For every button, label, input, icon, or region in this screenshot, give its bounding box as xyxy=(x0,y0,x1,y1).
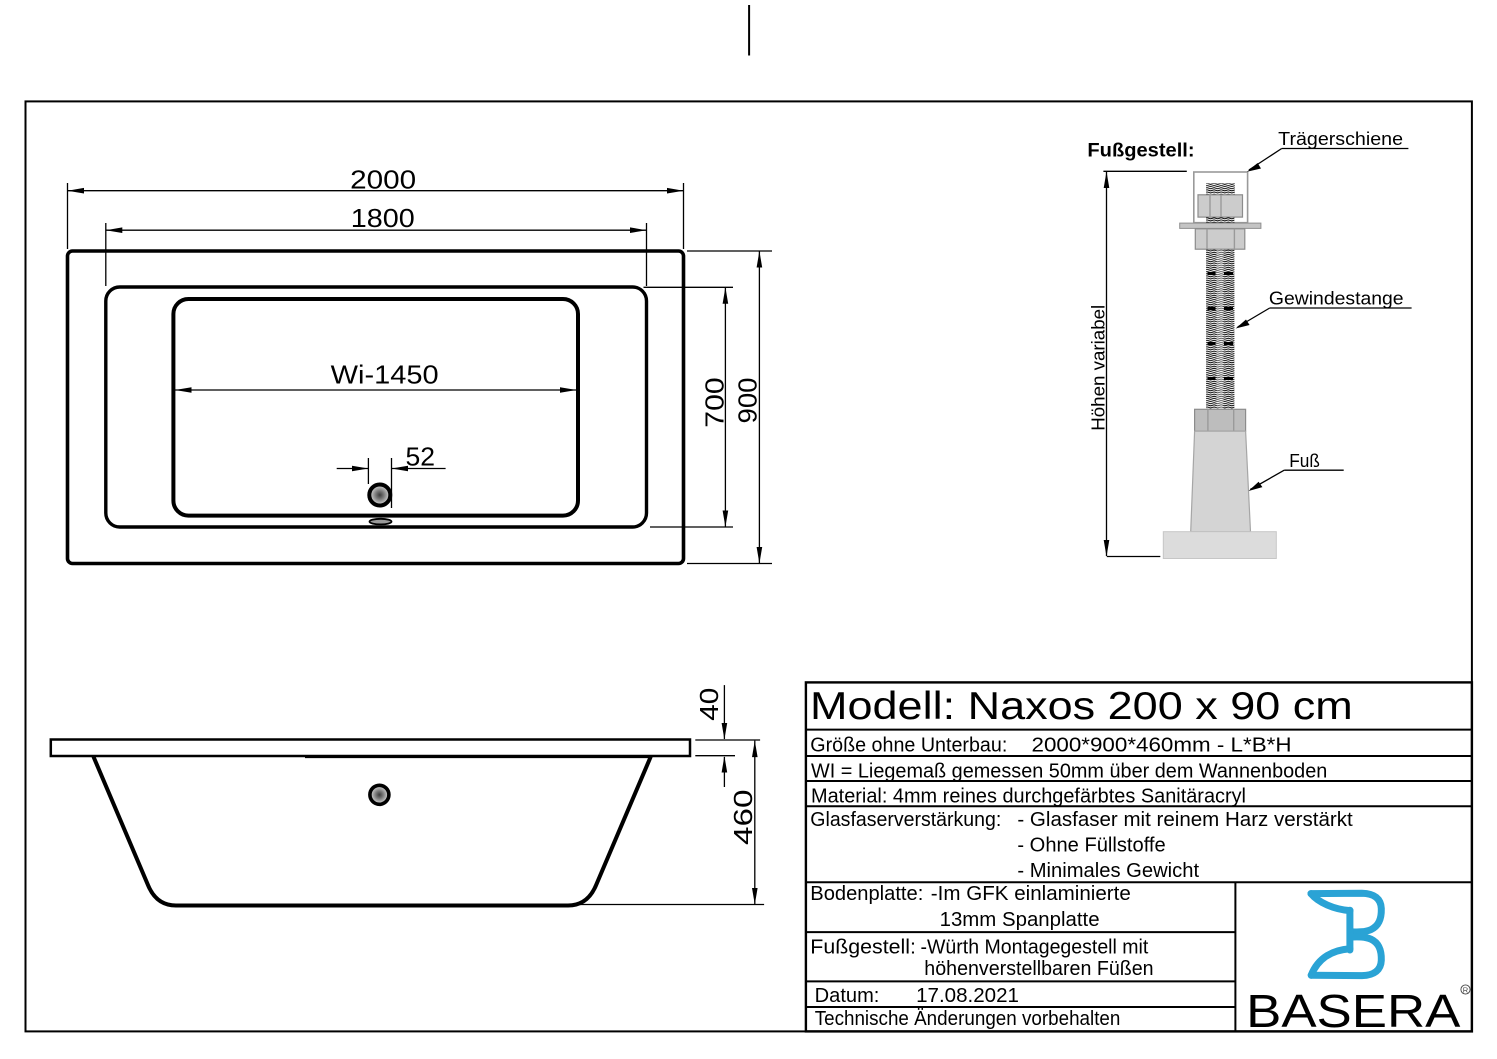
svg-text:- Ohne Füllstoffe: - Ohne Füllstoffe xyxy=(1017,835,1165,857)
svg-text:Technische Änderungen vorbehal: Technische Änderungen vorbehalten xyxy=(815,1008,1121,1030)
svg-text:Gewindestange: Gewindestange xyxy=(1269,289,1404,309)
svg-text:Höhen variabel: Höhen variabel xyxy=(1089,305,1109,431)
svg-text:1800: 1800 xyxy=(351,203,415,233)
svg-text:Modell: Naxos 200 x 90 cm: Modell: Naxos 200 x 90 cm xyxy=(810,685,1353,728)
svg-text:Wi-1450: Wi-1450 xyxy=(331,359,439,389)
svg-text:13mm Spanplatte: 13mm Spanplatte xyxy=(940,909,1100,931)
svg-text:Bodenplatte:: Bodenplatte: xyxy=(810,883,923,905)
svg-text:WI = Liegemaß gemessen 50mm üb: WI = Liegemaß gemessen 50mm über dem Wan… xyxy=(811,761,1327,783)
svg-text:Fuß: Fuß xyxy=(1289,451,1320,471)
svg-text:höhenverstellbaren Füßen: höhenverstellbaren Füßen xyxy=(924,958,1153,980)
svg-text:Größe ohne Unterbau:: Größe ohne Unterbau: xyxy=(810,734,1007,756)
svg-text:700: 700 xyxy=(699,377,729,427)
svg-text:- Minimales Gewicht: - Minimales Gewicht xyxy=(1017,860,1199,882)
svg-text:-Würth Montagegestell mit: -Würth Montagegestell mit xyxy=(921,936,1149,958)
svg-text:900: 900 xyxy=(733,378,763,424)
svg-text:Trägerschiene: Trägerschiene xyxy=(1278,129,1403,149)
svg-text:Fußgestell:: Fußgestell: xyxy=(810,936,916,958)
svg-text:460: 460 xyxy=(728,790,758,846)
svg-text:2000*900*460mm - L*B*H: 2000*900*460mm - L*B*H xyxy=(1032,734,1292,756)
svg-text:Glasfaserverstärkung:: Glasfaserverstärkung: xyxy=(810,809,1001,831)
svg-text:Material: 4mm reines durchgefä: Material: 4mm reines durchgefärbtes Sani… xyxy=(811,786,1246,808)
svg-text:17.08.2021: 17.08.2021 xyxy=(916,985,1019,1007)
svg-text:Datum:: Datum: xyxy=(815,985,880,1007)
svg-text:- Glasfaser mit reinem Harz ve: - Glasfaser mit reinem Harz verstärkt xyxy=(1017,809,1353,831)
svg-text:-Im GFK einlaminierte: -Im GFK einlaminierte xyxy=(931,883,1131,905)
svg-text:52: 52 xyxy=(406,441,436,471)
svg-text:R: R xyxy=(1463,986,1469,995)
svg-text:2000: 2000 xyxy=(350,165,416,195)
svg-text:40: 40 xyxy=(694,688,724,721)
svg-text:Fußgestell:: Fußgestell: xyxy=(1087,141,1194,162)
svg-text:BASERA: BASERA xyxy=(1246,985,1461,1037)
